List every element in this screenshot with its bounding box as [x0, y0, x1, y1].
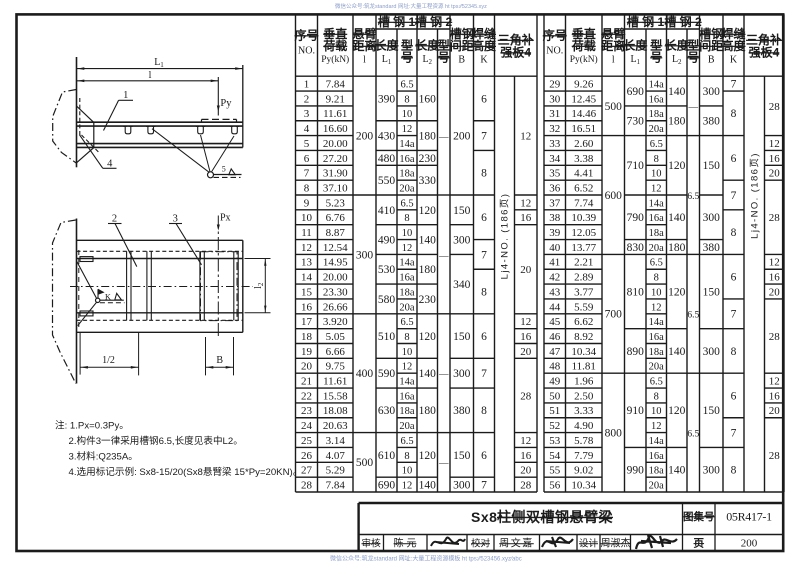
svg-text:13: 13: [301, 257, 313, 269]
svg-text:3.77: 3.77: [574, 286, 594, 298]
svg-text:29: 29: [549, 79, 561, 91]
svg-text:160: 160: [419, 93, 437, 105]
svg-text:20.63: 20.63: [323, 420, 348, 432]
svg-text:24: 24: [301, 420, 313, 432]
svg-text:180: 180: [668, 242, 686, 254]
svg-text:33: 33: [549, 138, 561, 150]
svg-text:710: 710: [627, 160, 645, 172]
svg-text:300: 300: [703, 346, 721, 358]
svg-text:—: —: [438, 133, 449, 143]
svg-text:9.75: 9.75: [326, 361, 346, 373]
svg-text:28: 28: [769, 331, 781, 343]
svg-text:14a: 14a: [399, 258, 415, 269]
svg-text:180: 180: [419, 264, 437, 276]
svg-text:16.51: 16.51: [571, 123, 596, 135]
svg-text:7: 7: [304, 168, 310, 180]
svg-text:20.00: 20.00: [323, 272, 348, 284]
svg-text:600: 600: [605, 190, 623, 202]
svg-text:校对: 校对: [471, 537, 491, 549]
svg-text:序号: 序号: [543, 28, 567, 43]
svg-text:10.34: 10.34: [571, 479, 596, 491]
svg-text:54: 54: [549, 450, 561, 462]
svg-text:9.02: 9.02: [574, 465, 593, 477]
svg-text:28: 28: [520, 390, 532, 402]
svg-text:审核: 审核: [361, 537, 381, 549]
svg-text:11.61: 11.61: [323, 108, 347, 120]
svg-text:微信公众号:筑龙standard 网址:大量工程资源 ht: 微信公众号:筑龙standard 网址:大量工程资源 ht tps:⁄⁄5234…: [335, 2, 487, 10]
svg-text:B: B: [458, 55, 465, 66]
svg-text:18a: 18a: [399, 287, 415, 298]
svg-text:6: 6: [481, 212, 487, 224]
svg-text:6: 6: [304, 153, 310, 165]
svg-text:20a: 20a: [399, 183, 415, 194]
svg-text:12: 12: [520, 435, 531, 447]
svg-text:2: 2: [112, 214, 117, 225]
svg-text:140: 140: [419, 479, 437, 491]
svg-text:Py(kN): Py(kN): [570, 54, 598, 65]
svg-text:150: 150: [703, 160, 721, 172]
svg-text:3.38: 3.38: [574, 153, 594, 165]
svg-text:7.84: 7.84: [326, 79, 346, 91]
svg-text:9.26: 9.26: [574, 79, 594, 91]
svg-text:15.58: 15.58: [323, 390, 348, 402]
svg-text:6.5: 6.5: [400, 80, 413, 91]
svg-text:12: 12: [402, 480, 413, 491]
svg-text:l2: l2: [253, 282, 265, 289]
svg-text:7: 7: [731, 190, 737, 202]
svg-text:Py(kN): Py(kN): [321, 54, 349, 65]
svg-text:号: 号: [438, 50, 450, 65]
svg-text:7: 7: [731, 428, 737, 440]
svg-text:12: 12: [520, 131, 531, 143]
svg-text:580: 580: [378, 294, 396, 306]
svg-text:12.05: 12.05: [571, 227, 596, 239]
svg-text:序号: 序号: [294, 28, 318, 43]
svg-text:10: 10: [651, 406, 662, 417]
svg-text:56: 56: [549, 479, 561, 491]
svg-text:14.46: 14.46: [571, 108, 596, 120]
svg-text:430: 430: [378, 131, 396, 143]
svg-text:12: 12: [402, 243, 413, 254]
svg-text:910: 910: [627, 405, 645, 417]
svg-text:6.5: 6.5: [400, 198, 413, 209]
svg-text:设计: 设计: [579, 537, 599, 549]
svg-text:55: 55: [549, 465, 561, 477]
svg-text:140: 140: [668, 346, 686, 358]
svg-text:3: 3: [173, 214, 178, 225]
svg-text:300: 300: [453, 368, 471, 380]
svg-text:9.21: 9.21: [326, 93, 345, 105]
svg-text:16a: 16a: [649, 332, 665, 343]
svg-text:12: 12: [651, 183, 662, 194]
svg-text:16: 16: [520, 450, 532, 462]
svg-text:6.5: 6.5: [687, 311, 699, 321]
svg-text:330: 330: [419, 175, 437, 187]
svg-text:15: 15: [301, 286, 313, 298]
svg-text:18a: 18a: [649, 228, 665, 239]
svg-text:120: 120: [668, 160, 686, 172]
svg-text:150: 150: [453, 450, 471, 462]
svg-text:10: 10: [402, 347, 413, 358]
svg-text:间距: 间距: [450, 38, 474, 53]
svg-text:12: 12: [651, 421, 662, 432]
svg-text:强板4: 强板4: [749, 45, 780, 60]
svg-text:6.5: 6.5: [687, 430, 699, 440]
svg-text:230: 230: [419, 294, 437, 306]
svg-text:810: 810: [627, 286, 645, 298]
svg-text:4.41: 4.41: [574, 168, 593, 180]
svg-text:L2: L2: [672, 54, 682, 66]
svg-text:长度: 长度: [665, 38, 690, 53]
svg-text:4.90: 4.90: [574, 420, 594, 432]
svg-text:8: 8: [481, 168, 487, 180]
svg-text:8: 8: [404, 451, 409, 462]
svg-text:2.21: 2.21: [574, 257, 593, 269]
svg-text:25: 25: [301, 435, 313, 447]
svg-text:16a: 16a: [649, 451, 665, 462]
svg-text:2.50: 2.50: [574, 390, 594, 402]
svg-text:200: 200: [741, 538, 758, 550]
svg-text:16a: 16a: [649, 213, 665, 224]
svg-text:5.59: 5.59: [574, 301, 594, 313]
svg-text:7: 7: [481, 479, 487, 491]
svg-text:2.构件3一律采用槽钢6.5,长度见表中L2。: 2.构件3一律采用槽钢6.5,长度见表中L2。: [69, 435, 243, 447]
svg-text:150: 150: [453, 205, 471, 217]
svg-text:L1: L1: [382, 54, 392, 66]
svg-text:号: 号: [687, 50, 699, 65]
svg-text:16.60: 16.60: [323, 123, 348, 135]
svg-text:120: 120: [668, 286, 686, 298]
svg-text:10: 10: [301, 212, 313, 224]
svg-text:35: 35: [549, 168, 561, 180]
svg-text:45: 45: [549, 316, 561, 328]
svg-text:8.92: 8.92: [574, 331, 593, 343]
svg-text:长度: 长度: [623, 38, 648, 53]
svg-text:380: 380: [703, 242, 721, 254]
svg-text:7.84: 7.84: [326, 479, 346, 491]
svg-text:610: 610: [378, 450, 396, 462]
svg-text:10.34: 10.34: [571, 346, 596, 358]
svg-text:6.76: 6.76: [326, 212, 346, 224]
svg-text:8: 8: [404, 332, 409, 343]
svg-text:150: 150: [453, 331, 471, 343]
svg-text:16a: 16a: [399, 391, 415, 402]
svg-text:12: 12: [301, 242, 312, 254]
svg-text:6: 6: [481, 450, 487, 462]
svg-text:图集号: 图集号: [683, 510, 715, 523]
svg-text:300: 300: [703, 465, 721, 477]
svg-text:3.33: 3.33: [574, 405, 594, 417]
svg-text:B: B: [708, 55, 715, 66]
svg-text:号: 号: [401, 50, 413, 65]
svg-text:3.14: 3.14: [326, 435, 346, 447]
svg-text:12: 12: [769, 376, 780, 388]
svg-text:20a: 20a: [649, 362, 665, 373]
svg-text:Px: Px: [220, 213, 231, 224]
svg-text:8: 8: [404, 94, 409, 105]
svg-text:8: 8: [654, 273, 659, 284]
svg-text:6.5: 6.5: [400, 436, 413, 447]
svg-text:52: 52: [549, 420, 560, 432]
svg-text:28: 28: [769, 101, 781, 113]
svg-text:12: 12: [769, 257, 780, 269]
svg-text:长度: 长度: [374, 38, 399, 53]
svg-text:28: 28: [769, 212, 781, 224]
svg-text:长度: 长度: [415, 38, 440, 53]
svg-text:16a: 16a: [399, 273, 415, 284]
svg-text:号: 号: [650, 50, 662, 65]
svg-text:6: 6: [481, 331, 487, 343]
svg-text:140: 140: [668, 212, 686, 224]
svg-text:18.08: 18.08: [323, 405, 348, 417]
svg-text:16: 16: [769, 390, 781, 402]
svg-text:8: 8: [731, 346, 737, 358]
svg-text:L2: L2: [422, 54, 432, 66]
svg-text:180: 180: [419, 131, 437, 143]
svg-text:11.81: 11.81: [572, 361, 596, 373]
svg-text:16a: 16a: [649, 94, 665, 105]
svg-text:5.23: 5.23: [326, 197, 346, 209]
svg-text:20: 20: [520, 465, 532, 477]
svg-text:12: 12: [651, 302, 662, 313]
svg-text:300: 300: [453, 234, 471, 246]
svg-text:4.选用标记示例: Sx8-15/20(Sx8悬臂梁 15*: 4.选用标记示例: Sx8-15/20(Sx8悬臂梁 15*Py=20KN)。: [69, 466, 303, 478]
svg-text:200: 200: [453, 131, 471, 143]
svg-text:2.89: 2.89: [574, 272, 594, 284]
svg-text:16: 16: [769, 153, 781, 165]
svg-text:180: 180: [419, 405, 437, 417]
svg-text:12: 12: [402, 362, 413, 373]
svg-text:NO.: NO.: [298, 46, 315, 57]
svg-text:荷载: 荷载: [571, 38, 596, 53]
svg-text:120: 120: [419, 450, 437, 462]
svg-text:14.95: 14.95: [323, 257, 348, 269]
svg-text:5: 5: [304, 138, 310, 150]
svg-text:17: 17: [301, 316, 313, 328]
svg-text:—: —: [438, 370, 449, 380]
svg-text:730: 730: [627, 116, 645, 128]
svg-text:42: 42: [549, 272, 560, 284]
svg-text:20: 20: [769, 286, 781, 298]
svg-text:6.52: 6.52: [574, 182, 593, 194]
svg-text:10: 10: [651, 287, 662, 298]
svg-text:l: l: [363, 55, 366, 66]
svg-text:18: 18: [301, 331, 313, 343]
svg-text:距离: 距离: [601, 38, 625, 53]
svg-text:410: 410: [378, 205, 396, 217]
svg-text:16: 16: [769, 272, 781, 284]
svg-text:28: 28: [769, 450, 781, 462]
svg-text:700: 700: [605, 309, 623, 321]
svg-text:8: 8: [481, 405, 487, 417]
svg-text:9: 9: [304, 197, 310, 209]
svg-text:8: 8: [654, 391, 659, 402]
svg-text:300: 300: [356, 249, 374, 261]
svg-text:16: 16: [520, 212, 532, 224]
svg-text:NO.: NO.: [546, 46, 563, 57]
svg-text:47: 47: [549, 346, 561, 358]
svg-text:340: 340: [453, 279, 471, 291]
svg-text:18a: 18a: [399, 169, 415, 180]
svg-text:Lj4-NO. (186页): Lj4-NO. (186页): [749, 152, 760, 239]
svg-text:37: 37: [549, 197, 561, 209]
svg-text:3.920: 3.920: [323, 316, 348, 328]
svg-text:4: 4: [304, 123, 310, 135]
svg-text:8.87: 8.87: [326, 227, 346, 239]
svg-text:46: 46: [549, 331, 561, 343]
svg-text:18a: 18a: [649, 347, 665, 358]
svg-text:36: 36: [549, 182, 561, 194]
svg-text:8: 8: [731, 465, 737, 477]
svg-text:Py: Py: [220, 98, 232, 109]
svg-text:10: 10: [651, 169, 662, 180]
svg-text:16: 16: [301, 301, 313, 313]
svg-text:26: 26: [301, 450, 313, 462]
svg-text:890: 890: [627, 346, 645, 358]
svg-text:26.66: 26.66: [323, 301, 348, 313]
svg-text:20a: 20a: [649, 480, 665, 491]
svg-text:140: 140: [668, 86, 686, 98]
svg-text:49: 49: [549, 376, 561, 388]
svg-text:1: 1: [304, 79, 310, 91]
svg-text:10: 10: [402, 466, 413, 477]
svg-text:400: 400: [356, 368, 374, 380]
svg-text:31.90: 31.90: [323, 168, 348, 180]
svg-text:8: 8: [481, 286, 487, 298]
svg-text:12.54: 12.54: [323, 242, 348, 254]
svg-text:790: 790: [627, 212, 645, 224]
svg-text:6.5: 6.5: [650, 258, 663, 269]
svg-text:6.62: 6.62: [574, 316, 593, 328]
svg-text:630: 630: [378, 405, 396, 417]
svg-text:—: —: [438, 459, 449, 469]
svg-text:41: 41: [549, 257, 560, 269]
svg-text:6: 6: [731, 272, 737, 284]
svg-text:27: 27: [301, 465, 313, 477]
svg-text:K: K: [105, 292, 111, 301]
svg-text:20a: 20a: [649, 124, 665, 135]
svg-text:140: 140: [419, 368, 437, 380]
svg-text:990: 990: [627, 465, 645, 477]
svg-text:6.5: 6.5: [650, 139, 663, 150]
svg-text:690: 690: [627, 86, 645, 98]
svg-text:10.39: 10.39: [571, 212, 596, 224]
svg-text:30: 30: [549, 93, 561, 105]
svg-text:120: 120: [419, 205, 437, 217]
svg-text:23: 23: [301, 405, 313, 417]
svg-text:周文嘉: 周文嘉: [499, 536, 534, 549]
svg-text:3: 3: [304, 108, 310, 120]
svg-text:K: K: [480, 55, 488, 66]
svg-text:5: 5: [222, 164, 226, 173]
svg-text:23.30: 23.30: [323, 286, 348, 298]
svg-text:20.00: 20.00: [323, 138, 348, 150]
svg-text:18a: 18a: [399, 406, 415, 417]
svg-text:高度: 高度: [472, 38, 497, 53]
svg-text:强板4: 强板4: [500, 45, 531, 60]
svg-text:6.5: 6.5: [687, 192, 699, 202]
svg-text:页: 页: [694, 538, 705, 550]
svg-text:120: 120: [419, 331, 437, 343]
svg-text:7: 7: [731, 79, 737, 91]
svg-text:周淑杰: 周淑杰: [601, 536, 631, 549]
svg-text:22: 22: [301, 390, 312, 402]
svg-text:43: 43: [549, 286, 561, 298]
svg-text:53: 53: [549, 435, 561, 447]
svg-text:7: 7: [481, 131, 487, 143]
svg-text:590: 590: [378, 368, 396, 380]
svg-text:20: 20: [769, 405, 781, 417]
svg-text:柱侧双槽钢悬臂梁: 柱侧双槽钢悬臂梁: [497, 509, 613, 525]
svg-text:L1: L1: [630, 54, 640, 66]
svg-text:7: 7: [731, 309, 737, 321]
svg-text:14a: 14a: [649, 436, 665, 447]
svg-text:28: 28: [301, 479, 313, 491]
svg-text:Lj4-NO. (186页): Lj4-NO. (186页): [500, 193, 511, 280]
svg-text:距离: 距离: [352, 38, 376, 53]
svg-text:21: 21: [301, 376, 312, 388]
svg-text:18a: 18a: [649, 109, 665, 120]
svg-text:50: 50: [549, 390, 561, 402]
svg-text:14: 14: [301, 272, 313, 284]
svg-text:05R417-1: 05R417-1: [726, 510, 772, 524]
svg-text:510: 510: [378, 331, 396, 343]
svg-text:3.材料:Q235A。: 3.材料:Q235A。: [69, 450, 138, 462]
svg-text:7: 7: [481, 249, 487, 261]
svg-text:槽 钢 1: 槽 钢 1: [378, 14, 416, 29]
svg-text:800: 800: [605, 428, 623, 440]
svg-text:8: 8: [731, 108, 737, 120]
svg-text:14a: 14a: [649, 198, 665, 209]
svg-text:300: 300: [453, 479, 471, 491]
svg-text:16a: 16a: [399, 154, 415, 165]
svg-text:槽 钢 2: 槽 钢 2: [664, 14, 702, 29]
svg-text:300: 300: [703, 86, 721, 98]
svg-text:38: 38: [549, 212, 561, 224]
svg-text:500: 500: [356, 457, 374, 469]
svg-text:4: 4: [107, 158, 113, 169]
svg-text:150: 150: [703, 405, 721, 417]
svg-text:200: 200: [356, 131, 374, 143]
svg-text:微信公众号:筑龙standard 网址:大量工程资源模板: 微信公众号:筑龙standard 网址:大量工程资源模板 ht tps:⁄⁄52…: [330, 555, 522, 563]
svg-text:480: 480: [378, 153, 396, 165]
svg-text:14a: 14a: [649, 317, 665, 328]
svg-text:37.10: 37.10: [323, 182, 348, 194]
svg-text:槽 钢 1: 槽 钢 1: [627, 14, 665, 29]
svg-text:6: 6: [731, 153, 737, 165]
svg-text:间距: 间距: [699, 38, 723, 53]
svg-text:34: 34: [549, 153, 561, 165]
svg-text:690: 690: [378, 479, 396, 491]
svg-text:6: 6: [731, 390, 737, 402]
svg-text:8: 8: [731, 227, 737, 239]
svg-text:20a: 20a: [399, 302, 415, 313]
svg-text:230: 230: [419, 153, 437, 165]
svg-text:12: 12: [769, 138, 780, 150]
svg-text:陈 元: 陈 元: [394, 536, 417, 549]
svg-text:l: l: [149, 70, 152, 81]
svg-text:20: 20: [520, 346, 532, 358]
svg-text:28: 28: [520, 479, 532, 491]
svg-text:10: 10: [402, 228, 413, 239]
svg-text:4.07: 4.07: [326, 450, 346, 462]
svg-text:830: 830: [627, 242, 645, 254]
svg-text:530: 530: [378, 264, 396, 276]
svg-text:5.78: 5.78: [574, 435, 594, 447]
svg-text:14a: 14a: [649, 80, 665, 91]
svg-text:12.45: 12.45: [571, 93, 596, 105]
svg-text:11.61: 11.61: [323, 376, 347, 388]
